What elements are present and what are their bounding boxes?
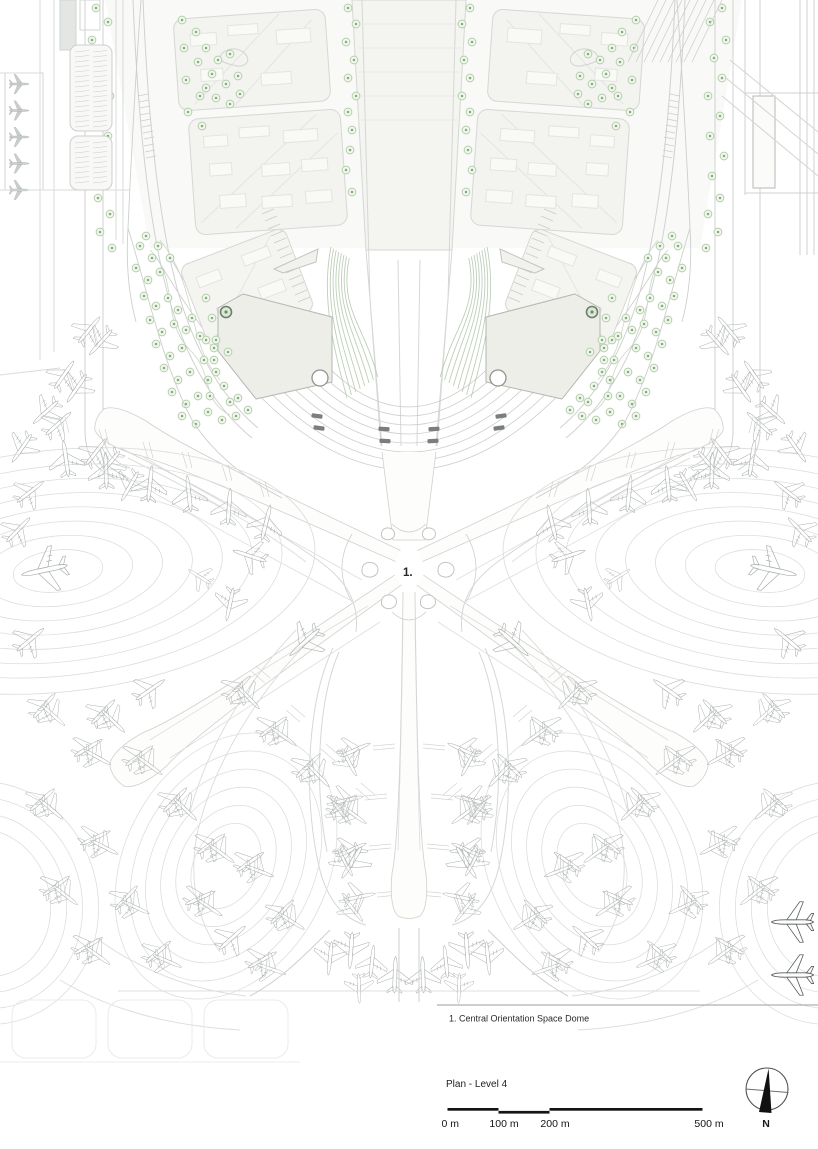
svg-text:1.: 1. [403, 567, 413, 579]
svg-text:Plan - Level 4: Plan - Level 4 [446, 1079, 508, 1090]
svg-text:100 m: 100 m [489, 1118, 518, 1130]
svg-text:N: N [762, 1118, 770, 1130]
svg-text:200 m: 200 m [540, 1118, 569, 1130]
svg-text:500 m: 500 m [694, 1118, 723, 1130]
svg-text:1. Central Orientation Space D: 1. Central Orientation Space Dome [449, 1014, 589, 1024]
svg-text:0 m: 0 m [442, 1118, 460, 1130]
